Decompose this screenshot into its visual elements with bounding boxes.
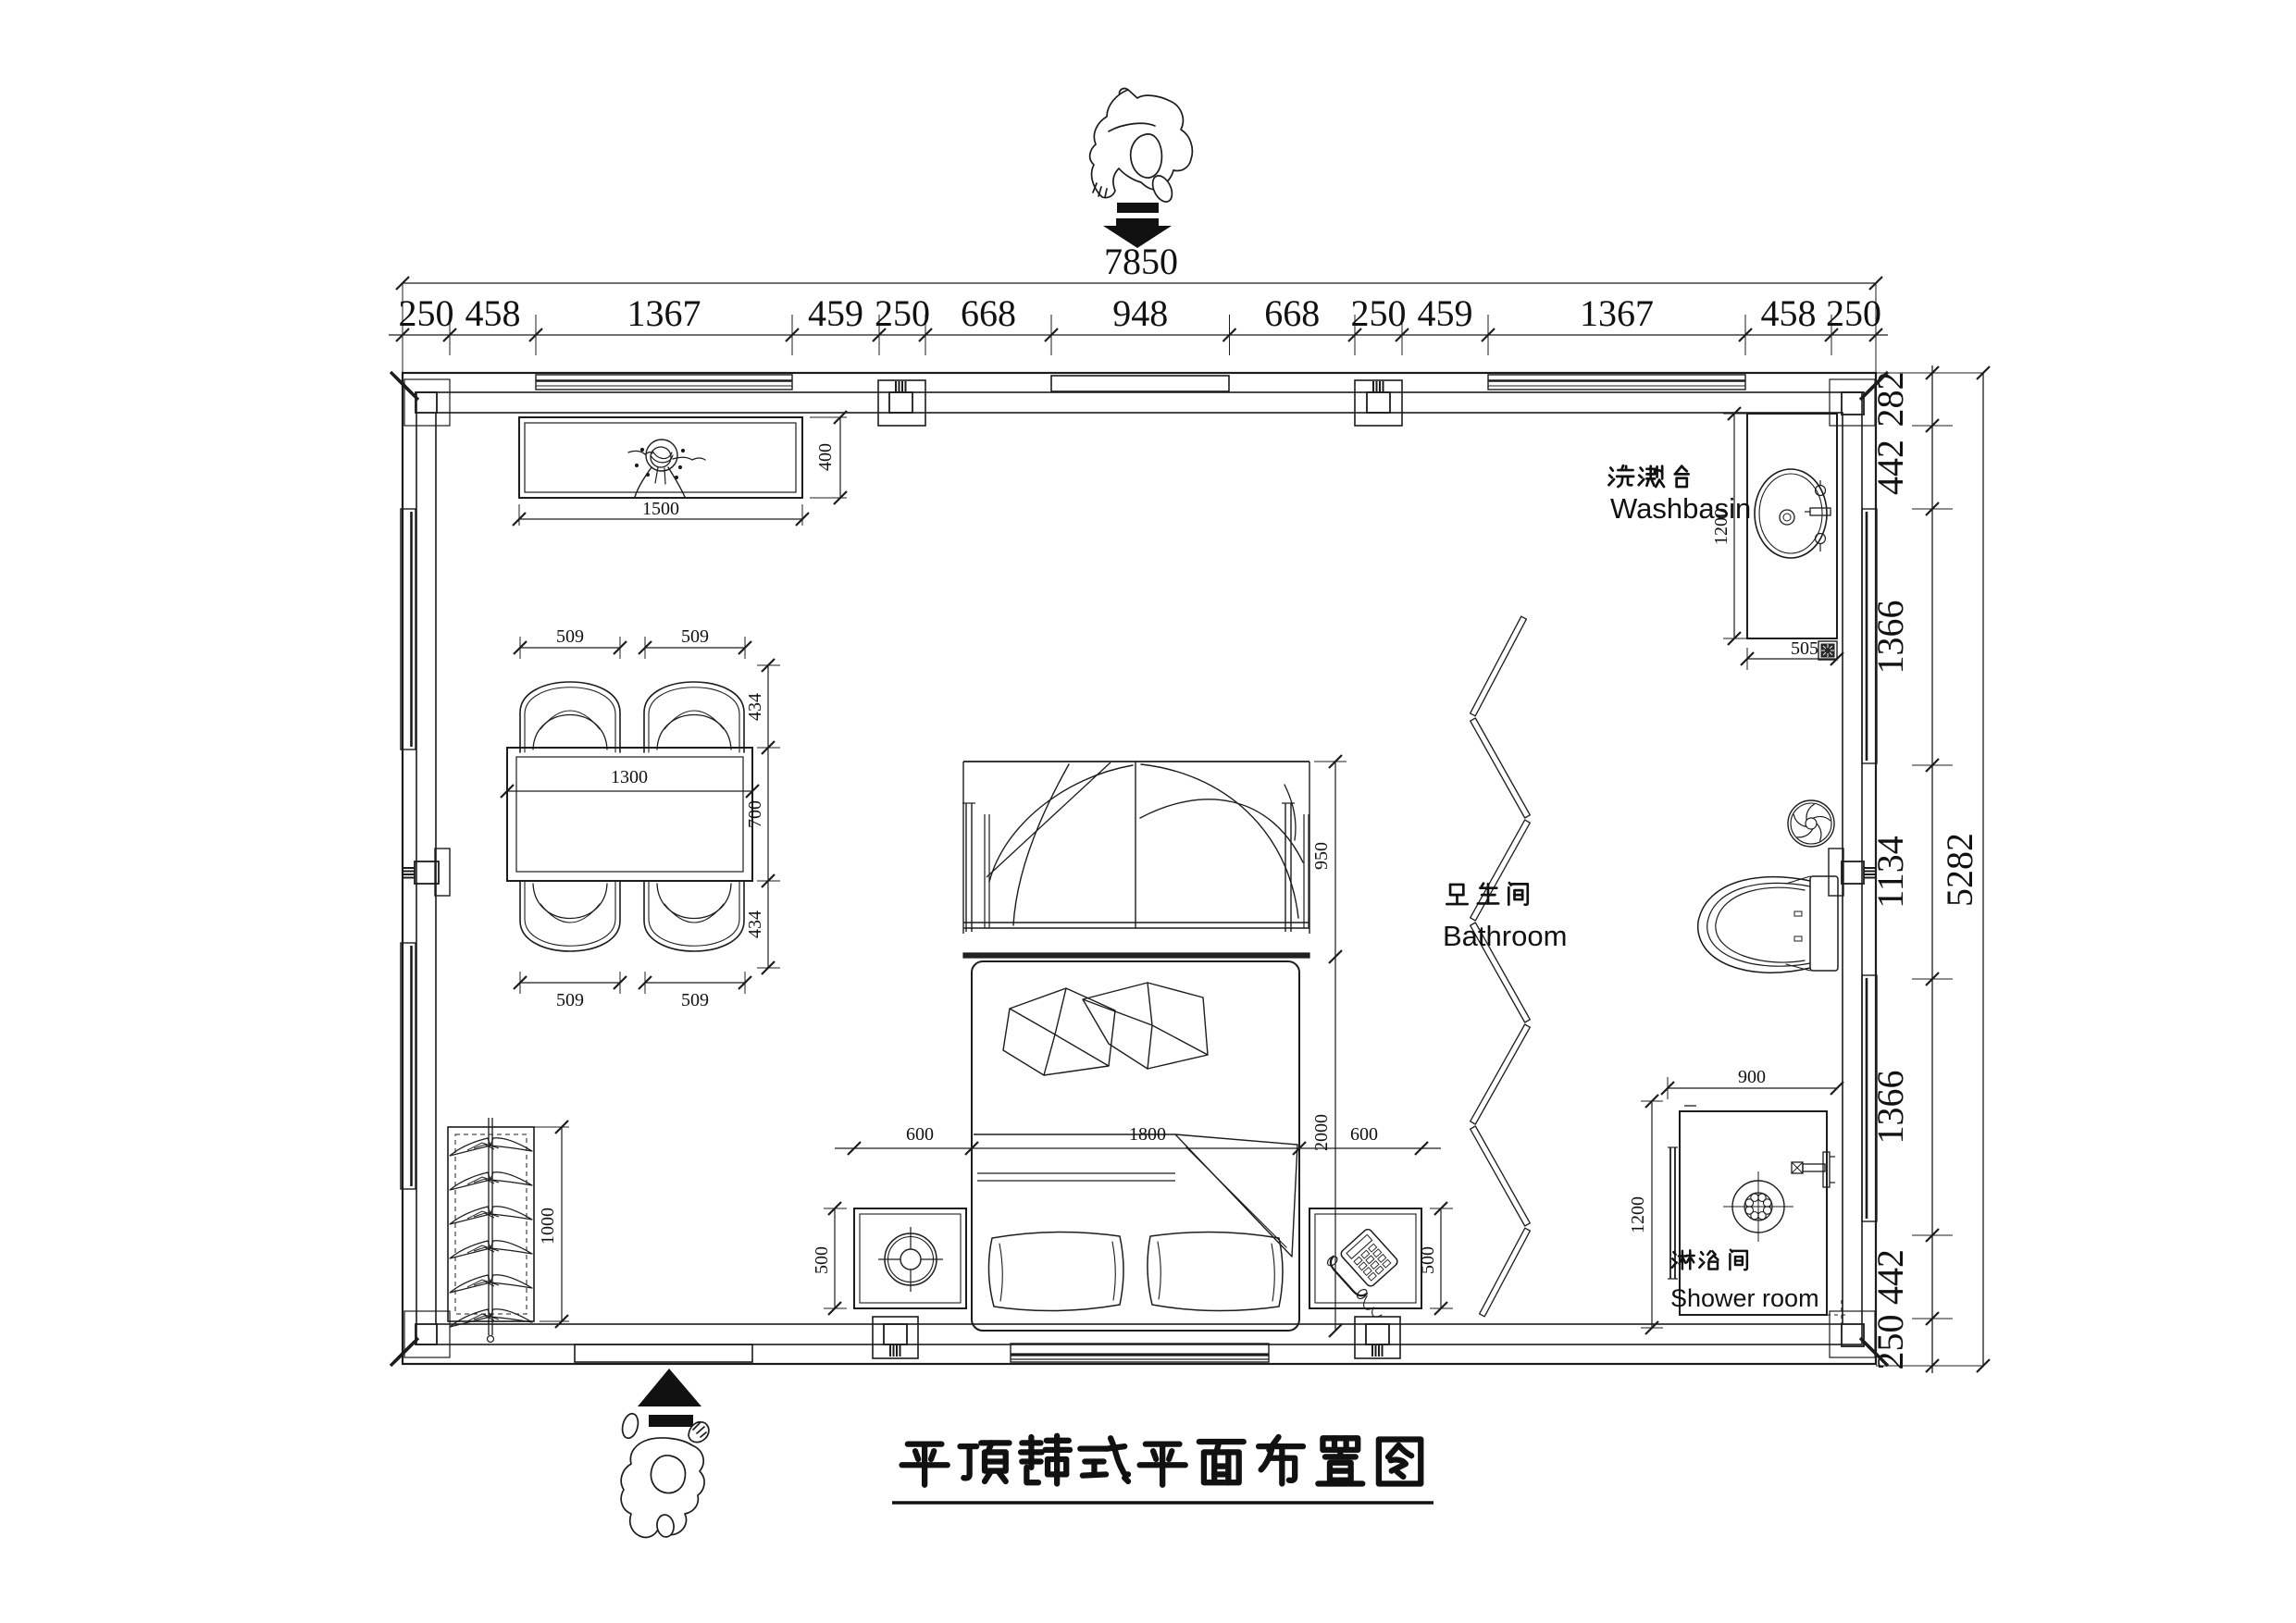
svg-text:509: 509 (556, 990, 584, 1010)
svg-text:250: 250 (1351, 292, 1407, 334)
svg-text:400: 400 (815, 443, 836, 471)
svg-text:5282: 5282 (1939, 833, 1980, 907)
svg-text:250: 250 (1869, 1315, 1911, 1370)
svg-text:459: 459 (1418, 292, 1473, 334)
svg-text:509: 509 (681, 990, 709, 1010)
svg-text:509: 509 (556, 626, 584, 647)
svg-text:250: 250 (875, 292, 930, 334)
svg-text:7850: 7850 (1104, 241, 1178, 282)
svg-text:700: 700 (745, 800, 765, 828)
svg-text:1367: 1367 (627, 292, 701, 334)
svg-text:1000: 1000 (538, 1208, 558, 1245)
svg-text:434: 434 (745, 693, 765, 721)
svg-text:282: 282 (1869, 372, 1911, 427)
svg-text:1367: 1367 (1580, 292, 1654, 334)
svg-text:1300: 1300 (611, 767, 648, 787)
svg-text:Bathroom: Bathroom (1443, 920, 1567, 952)
svg-text:250: 250 (399, 292, 454, 334)
svg-text:1200: 1200 (1628, 1196, 1648, 1233)
svg-text:950: 950 (1311, 842, 1332, 870)
svg-text:600: 600 (1350, 1124, 1378, 1145)
svg-text:1366: 1366 (1869, 1071, 1911, 1145)
svg-text:500: 500 (812, 1246, 832, 1274)
svg-text:1500: 1500 (642, 499, 679, 519)
svg-text:509: 509 (681, 626, 709, 647)
svg-text:1800: 1800 (1129, 1124, 1166, 1145)
svg-text:458: 458 (465, 292, 521, 334)
svg-text:442: 442 (1869, 440, 1911, 495)
svg-text:1366: 1366 (1869, 601, 1911, 675)
svg-text:1134: 1134 (1869, 836, 1911, 909)
svg-text:434: 434 (745, 911, 765, 938)
svg-text:2000: 2000 (1311, 1114, 1332, 1151)
svg-text:442: 442 (1869, 1249, 1911, 1305)
svg-text:668: 668 (1264, 292, 1320, 334)
svg-text:500: 500 (1418, 1246, 1438, 1274)
svg-text:250: 250 (1826, 292, 1881, 334)
svg-text:458: 458 (1761, 292, 1817, 334)
svg-text:Washbasin: Washbasin (1610, 492, 1751, 525)
svg-text:900: 900 (1738, 1067, 1766, 1087)
svg-text:948: 948 (1112, 292, 1168, 334)
svg-text:459: 459 (808, 292, 863, 334)
svg-text:600: 600 (906, 1124, 934, 1145)
svg-text:505: 505 (1791, 638, 1818, 659)
svg-text:668: 668 (961, 292, 1016, 334)
svg-text:Shower room: Shower room (1670, 1284, 1819, 1312)
